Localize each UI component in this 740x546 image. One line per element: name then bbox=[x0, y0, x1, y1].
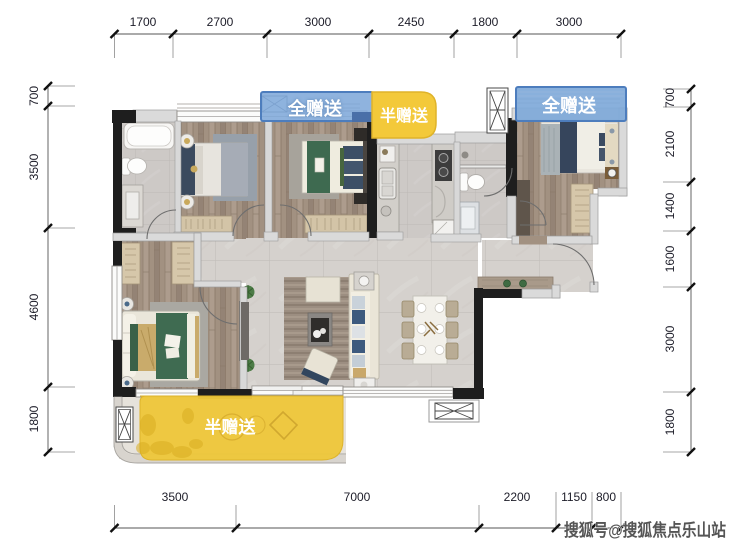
svg-text:3500: 3500 bbox=[162, 490, 189, 504]
svg-text:2200: 2200 bbox=[504, 490, 531, 504]
svg-text:2450: 2450 bbox=[398, 15, 425, 29]
svg-text:1600: 1600 bbox=[663, 245, 677, 272]
svg-text:7000: 7000 bbox=[344, 490, 371, 504]
svg-text:搜狐号@搜狐焦点乐山站: 搜狐号@搜狐焦点乐山站 bbox=[564, 520, 726, 540]
svg-text:2700: 2700 bbox=[207, 15, 234, 29]
svg-text:半赠送: 半赠送 bbox=[205, 417, 257, 437]
svg-text:700: 700 bbox=[663, 88, 677, 108]
svg-text:1800: 1800 bbox=[663, 408, 677, 435]
svg-text:3000: 3000 bbox=[556, 15, 583, 29]
svg-text:700: 700 bbox=[27, 86, 41, 106]
svg-text:4600: 4600 bbox=[27, 293, 41, 320]
svg-text:1700: 1700 bbox=[130, 15, 157, 29]
svg-text:半赠送: 半赠送 bbox=[380, 106, 429, 125]
svg-text:全赠送: 全赠送 bbox=[287, 98, 343, 119]
svg-text:2100: 2100 bbox=[663, 130, 677, 157]
svg-text:3000: 3000 bbox=[663, 325, 677, 352]
svg-text:全赠送: 全赠送 bbox=[541, 95, 597, 116]
svg-text:1800: 1800 bbox=[472, 15, 499, 29]
svg-text:3500: 3500 bbox=[27, 153, 41, 180]
svg-text:1400: 1400 bbox=[663, 192, 677, 219]
svg-text:800: 800 bbox=[596, 490, 616, 504]
svg-text:1800: 1800 bbox=[27, 405, 41, 432]
svg-text:3000: 3000 bbox=[305, 15, 332, 29]
svg-text:1150: 1150 bbox=[561, 490, 587, 504]
